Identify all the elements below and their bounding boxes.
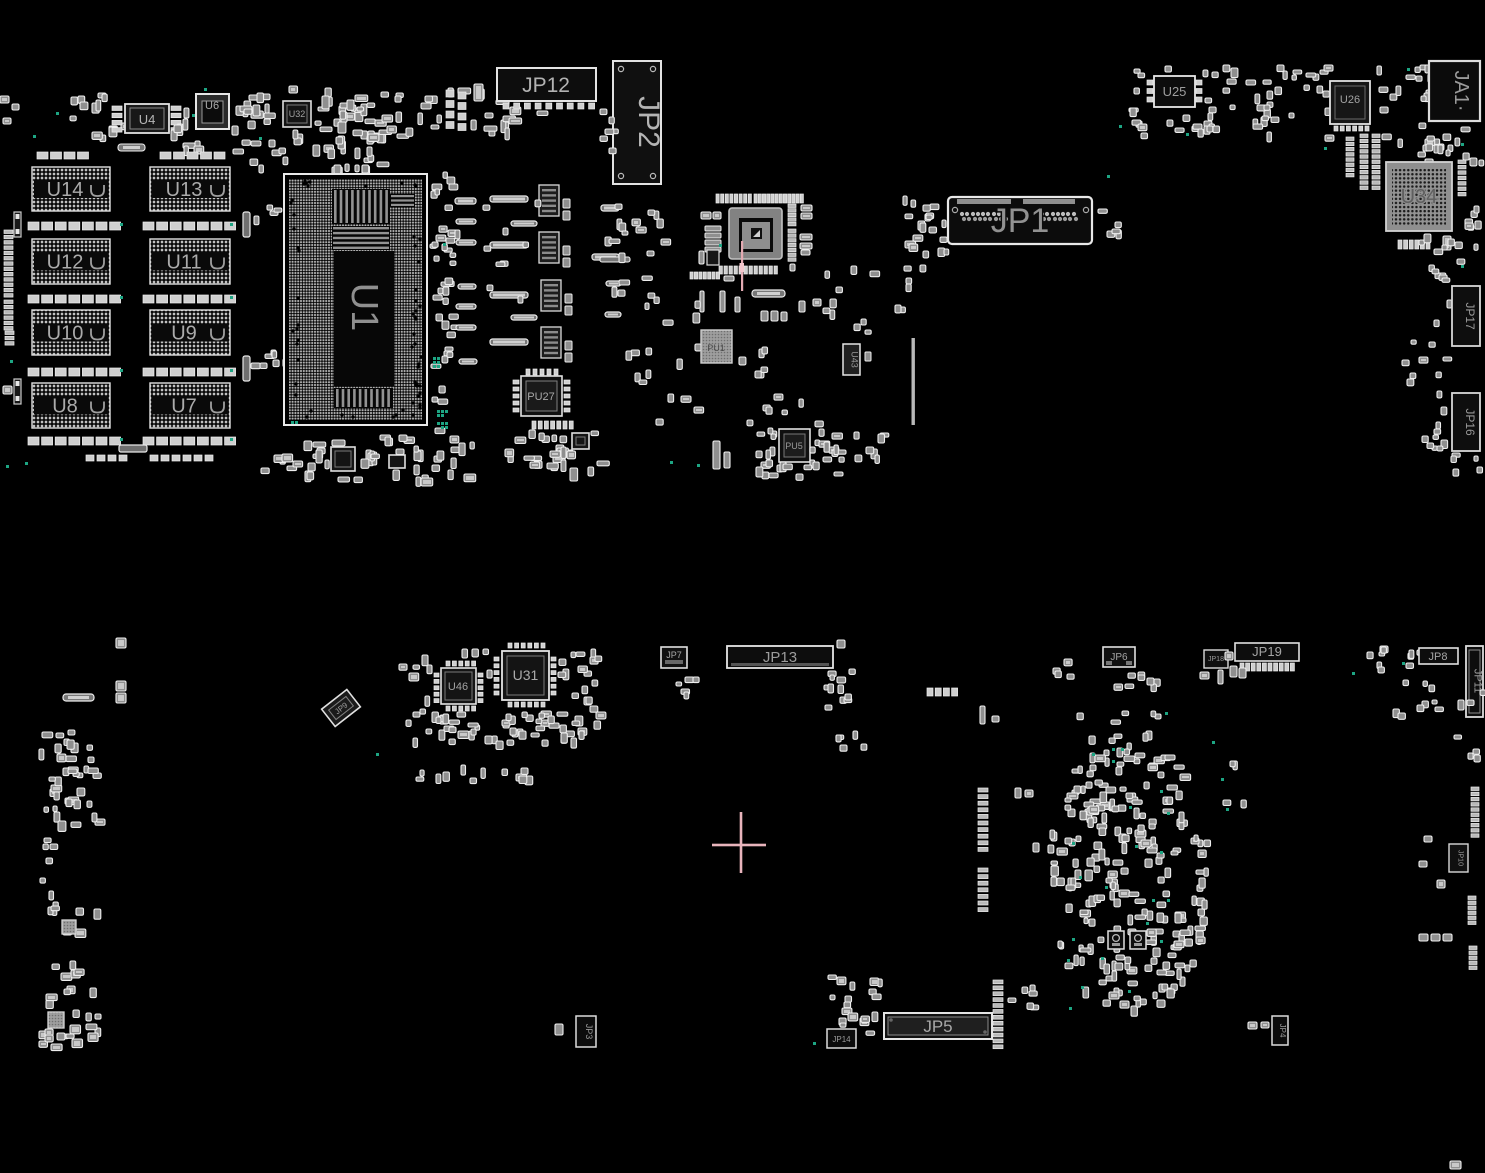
- svg-text:JP19: JP19: [1252, 644, 1282, 659]
- svg-text:JA1·: JA1·: [1450, 70, 1472, 111]
- svg-text:JP1: JP1: [991, 202, 1050, 240]
- svg-text:PU1: PU1: [707, 343, 725, 353]
- svg-text:JP2: JP2: [632, 96, 665, 148]
- svg-text:U32: U32: [289, 109, 306, 119]
- svg-text:JP16: JP16: [1463, 408, 1477, 436]
- svg-text:JP3: JP3: [584, 1024, 594, 1040]
- svg-text:JP6: JP6: [1110, 652, 1128, 663]
- svg-text:JP5: JP5: [923, 1017, 952, 1036]
- svg-text:U8: U8: [52, 396, 78, 418]
- svg-text:JP17: JP17: [1463, 302, 1477, 330]
- svg-text:U14: U14: [47, 179, 84, 201]
- svg-text:U26: U26: [1340, 94, 1360, 106]
- svg-text:JP8: JP8: [1429, 651, 1448, 663]
- svg-text:JP7: JP7: [666, 650, 682, 660]
- svg-text:U13: U13: [166, 179, 203, 201]
- svg-text:PU5: PU5: [785, 441, 803, 451]
- svg-text:U7: U7: [171, 396, 197, 418]
- svg-text:JP18: JP18: [1208, 656, 1224, 663]
- svg-text:JP14: JP14: [832, 1035, 851, 1044]
- svg-text:U11: U11: [166, 252, 201, 274]
- svg-text:U12: U12: [47, 252, 84, 274]
- svg-text:U10: U10: [47, 323, 84, 345]
- svg-text:JP4: JP4: [1278, 1024, 1287, 1038]
- svg-text:PU27: PU27: [527, 391, 555, 403]
- svg-text:JP10: JP10: [1457, 850, 1464, 866]
- svg-text:JP12: JP12: [522, 74, 570, 97]
- svg-text:U25: U25: [1163, 84, 1187, 99]
- svg-text:U43: U43: [850, 351, 860, 368]
- svg-text:U1: U1: [343, 283, 385, 332]
- svg-text:U6: U6: [205, 100, 219, 112]
- svg-text:U46: U46: [448, 681, 468, 693]
- svg-text:U4: U4: [139, 112, 156, 127]
- svg-text:U34: U34: [1401, 186, 1438, 208]
- svg-text:U9: U9: [171, 323, 197, 345]
- svg-text:U31: U31: [513, 667, 539, 683]
